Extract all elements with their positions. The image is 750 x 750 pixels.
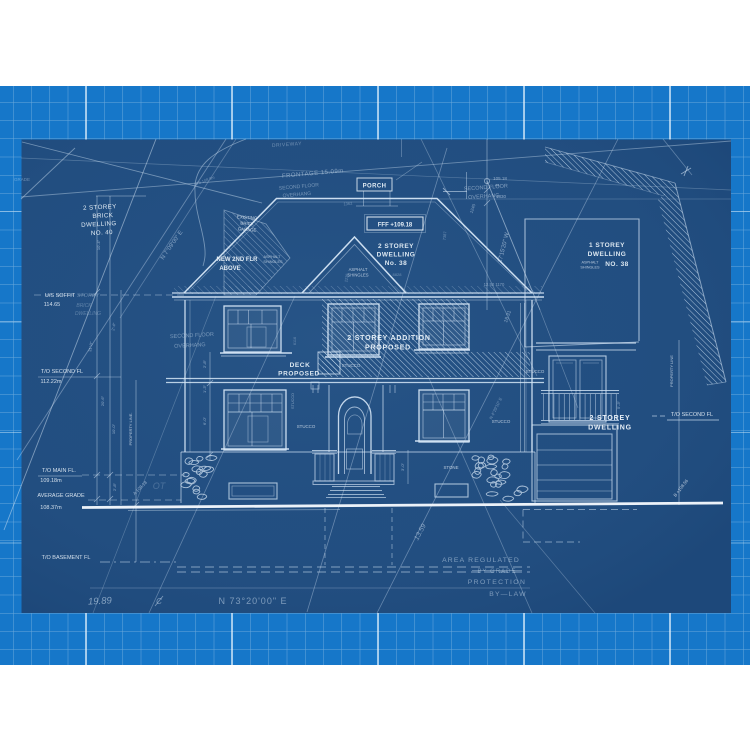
svg-text:1'-3": 1'-3" xyxy=(202,384,207,393)
svg-text:2 STOREY ADDITION: 2 STOREY ADDITION xyxy=(347,335,430,342)
svg-text:T/O BASEMENT FL: T/O BASEMENT FL xyxy=(42,555,91,561)
svg-text:ASPHALT: ASPHALT xyxy=(581,261,599,265)
svg-text:STONE: STONE xyxy=(443,465,458,470)
svg-text:5'-3": 5'-3" xyxy=(616,400,621,409)
svg-text:108.37m: 108.37m xyxy=(40,505,62,511)
svg-text:PROPERTY LINE: PROPERTY LINE xyxy=(669,355,674,387)
svg-text:PROTECTION: PROTECTION xyxy=(468,579,527,586)
svg-text:STUCCO: STUCCO xyxy=(297,424,316,429)
svg-text:2'-8": 2'-8" xyxy=(112,482,117,491)
svg-text:STUCCO: STUCCO xyxy=(291,393,295,409)
svg-text:NO. 38: NO. 38 xyxy=(605,261,629,268)
svg-text:7387: 7387 xyxy=(442,230,448,240)
svg-text:T/O MAIN FL.: T/O MAIN FL. xyxy=(42,468,76,474)
svg-text:T/O SECOND FL: T/O SECOND FL xyxy=(41,369,83,375)
svg-text:BRICK: BRICK xyxy=(92,212,114,220)
svg-text:N 73°20'00" E: N 73°20'00" E xyxy=(218,596,287,606)
svg-text:12.50 1170: 12.50 1170 xyxy=(484,282,505,287)
svg-text:10'-0": 10'-0" xyxy=(111,423,116,434)
svg-text:STUCCO: STUCCO xyxy=(492,419,511,424)
svg-text:PORCH: PORCH xyxy=(363,184,387,190)
svg-text:GRADE: GRADE xyxy=(14,177,30,182)
svg-text:BY—LAW: BY—LAW xyxy=(489,591,527,598)
svg-text:T/O SECOND FL: T/O SECOND FL xyxy=(671,412,713,418)
svg-text:PROPERTY LINE.: PROPERTY LINE. xyxy=(128,413,133,446)
svg-text:DWELLING: DWELLING xyxy=(75,311,101,317)
svg-text:44: 44 xyxy=(495,183,500,188)
svg-text:2 STOREY: 2 STOREY xyxy=(378,243,414,250)
svg-text:AREA REGULATED: AREA REGULATED xyxy=(442,557,520,564)
svg-text:PROPOSED: PROPOSED xyxy=(365,345,411,352)
svg-text:ASPHALT: ASPHALT xyxy=(263,255,281,259)
svg-text:DWELLING: DWELLING xyxy=(588,251,627,258)
svg-text:10'-4": 10'-4" xyxy=(96,239,101,250)
svg-text:NEW 2ND FLR: NEW 2ND FLR xyxy=(217,257,259,263)
svg-text:1362: 1362 xyxy=(343,201,353,207)
svg-text:STOREY: STOREY xyxy=(77,293,100,299)
svg-text:DWELLING: DWELLING xyxy=(588,425,632,432)
svg-text:PROPOSED: PROPOSED xyxy=(278,371,320,378)
svg-text:BY GRADE: BY GRADE xyxy=(478,569,517,575)
svg-text:109.18m: 109.18m xyxy=(40,478,62,484)
svg-text:1 STOREY: 1 STOREY xyxy=(589,242,625,249)
svg-text:AVERAGE GRADE: AVERAGE GRADE xyxy=(37,493,85,499)
svg-text:NO. 40: NO. 40 xyxy=(91,229,113,237)
svg-text:FFF +109.18: FFF +109.18 xyxy=(378,223,413,229)
svg-text:STUCCO: STUCCO xyxy=(526,369,545,374)
svg-text:19.89: 19.89 xyxy=(88,595,113,607)
svg-text:BRICK: BRICK xyxy=(240,221,254,227)
svg-text:STUCCO: STUCCO xyxy=(342,363,361,368)
svg-text:6'-0": 6'-0" xyxy=(202,416,207,425)
svg-text:DWELLING: DWELLING xyxy=(377,252,416,259)
svg-text:114.65: 114.65 xyxy=(44,302,60,308)
svg-text:112.22m: 112.22m xyxy=(41,379,62,385)
svg-text:6116: 6116 xyxy=(293,337,297,345)
svg-text:1830: 1830 xyxy=(496,194,507,199)
svg-text:No. 38: No. 38 xyxy=(385,260,408,267)
svg-text:OT: OT xyxy=(153,481,167,491)
svg-text:SHINGLES: SHINGLES xyxy=(263,260,283,264)
svg-text:DECK: DECK xyxy=(290,362,311,369)
svg-text:8828: 8828 xyxy=(393,272,403,277)
svg-text:ASPHALT: ASPHALT xyxy=(349,267,368,272)
svg-text:BRICK: BRICK xyxy=(76,303,92,309)
svg-text:SHINGLES: SHINGLES xyxy=(347,273,368,278)
svg-text:U/S SOFFIT: U/S SOFFIT xyxy=(45,293,76,299)
svg-text:3'-0": 3'-0" xyxy=(400,462,405,471)
svg-text:ABOVE: ABOVE xyxy=(219,266,240,272)
svg-text:20'-6": 20'-6" xyxy=(100,395,105,406)
svg-text:105.18: 105.18 xyxy=(493,176,507,181)
svg-text:2'-8": 2'-8" xyxy=(202,359,207,368)
svg-text:SHINGLES: SHINGLES xyxy=(580,266,600,270)
svg-text:2 STOREY: 2 STOREY xyxy=(590,415,631,422)
